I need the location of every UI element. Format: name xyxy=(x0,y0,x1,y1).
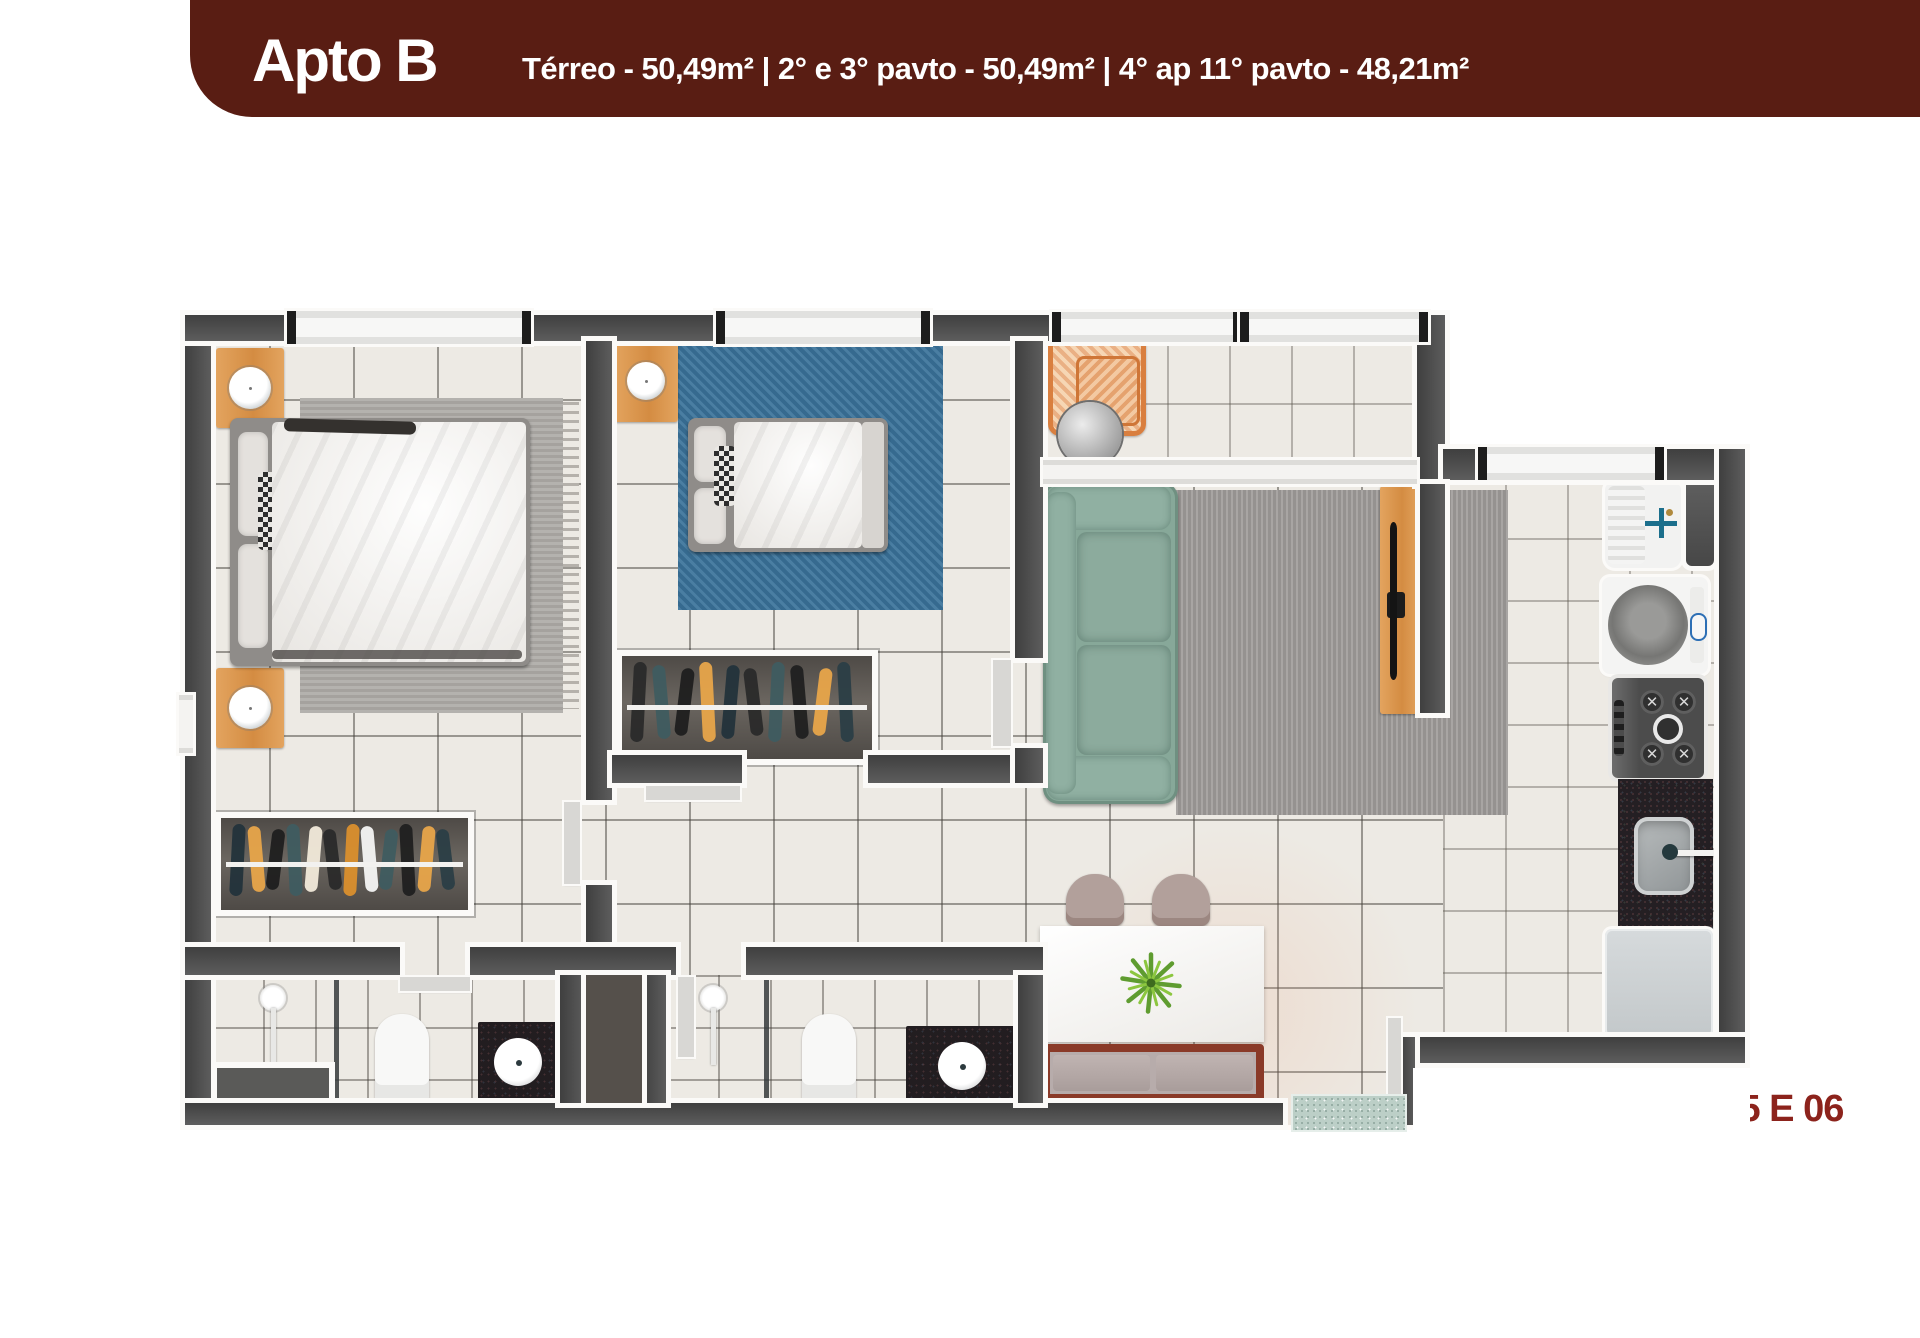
bathroom1-door-leaf xyxy=(400,977,470,991)
toilet xyxy=(802,1014,856,1103)
shower-arm xyxy=(271,1008,276,1065)
table-lamp-icon xyxy=(229,367,271,409)
gas-stove: ✕ ✕ ✕ ✕ xyxy=(1612,678,1704,778)
master-closet xyxy=(215,812,474,916)
shower-arm xyxy=(711,1008,716,1065)
wall-master-east-upper xyxy=(586,341,612,800)
hanging-clothes-icon xyxy=(343,823,360,895)
hanging-clothes-icon xyxy=(229,823,246,895)
hanging-clothes-icon xyxy=(743,668,764,737)
wall-bath-top-1 xyxy=(185,947,400,975)
refrigerator xyxy=(1605,929,1713,1037)
kitchen-drain xyxy=(1662,844,1678,860)
plant-icon xyxy=(1118,950,1184,1016)
dining-chair xyxy=(1066,874,1124,926)
washer-button xyxy=(1690,613,1707,641)
dining-chair xyxy=(1152,874,1210,926)
stove-burner-icon: ✕ xyxy=(1672,742,1696,766)
shower-glass-partition xyxy=(764,975,769,1103)
sofa-cushion xyxy=(1077,532,1171,642)
area-subtitle: Térreo - 50,49m² | 2° e 3° pavto - 50,49… xyxy=(522,51,1469,87)
outside-top-right xyxy=(1450,310,1750,444)
washing-machine xyxy=(1602,577,1708,674)
wall-bedroom2-south-left xyxy=(612,755,742,783)
shower-bench xyxy=(211,1062,335,1106)
hanging-clothes-icon xyxy=(699,662,716,743)
hanging-clothes-icon xyxy=(436,828,456,890)
bench-cushion xyxy=(1053,1055,1150,1091)
header-banner: Apto B Térreo - 50,49m² | 2° e 3° pavto … xyxy=(190,0,1920,117)
sofa xyxy=(1043,482,1178,804)
master-rug-fringe xyxy=(563,402,579,709)
stove-burner-icon: ✕ xyxy=(1640,690,1664,714)
doormat xyxy=(1291,1094,1407,1132)
wall-bath-top-3 xyxy=(746,947,1043,975)
stove-burner-icon: ✕ xyxy=(1672,690,1696,714)
wall-master-east-lower xyxy=(586,885,612,947)
bed-duvet xyxy=(734,422,862,548)
hanging-clothes-icon xyxy=(674,668,695,737)
closet-rail xyxy=(226,862,463,867)
table-lamp-icon xyxy=(229,687,271,729)
floor-plan-page: Apto B Térreo - 50,49m² | 2° e 3° pavto … xyxy=(0,0,1920,1338)
wall-bath2-east xyxy=(1018,975,1043,1103)
hanging-clothes-icon xyxy=(322,828,342,890)
vent-left-wall xyxy=(179,695,193,753)
hanging-clothes-icon xyxy=(265,828,285,890)
hanging-clothes-icon xyxy=(630,662,647,743)
tv-icon xyxy=(1390,522,1397,680)
hanging-clothes-icon xyxy=(768,662,785,743)
stove-knobs xyxy=(1614,700,1624,756)
bedroom2-closet xyxy=(616,650,878,765)
wall-bedroom2-east-stub xyxy=(1015,748,1043,783)
hanging-clothes-icon xyxy=(721,665,740,740)
balcony-window-sill xyxy=(1043,460,1417,484)
service-shaft xyxy=(586,975,642,1103)
dining-bench xyxy=(1042,1044,1264,1102)
bed-pillow xyxy=(238,544,268,648)
wall-living-east xyxy=(1420,484,1445,713)
hanging-clothes-icon xyxy=(652,665,671,740)
hanging-clothes-icon xyxy=(417,826,436,893)
living-room-rug xyxy=(1176,490,1508,815)
table-lamp-icon xyxy=(627,362,665,400)
sofa-cushion xyxy=(1077,645,1171,755)
hanging-clothes-icon xyxy=(304,826,323,893)
wall-kitchen-bottom xyxy=(1413,1037,1745,1063)
hanging-clothes-icon xyxy=(399,823,416,895)
bedroom2-door-leaf xyxy=(646,786,740,800)
bedroom2-east-door-leaf xyxy=(993,660,1011,746)
bench-cushion xyxy=(1156,1055,1253,1091)
wall-bath-divider-1 xyxy=(560,975,586,1103)
page-title: Apto B xyxy=(252,26,437,95)
stove-center-burner-icon xyxy=(1653,714,1683,744)
wall-outer-right xyxy=(1719,449,1745,1063)
tank-faucet-icon xyxy=(1659,508,1664,538)
wall-outer-bottom xyxy=(185,1103,1283,1125)
entry-door-leaf xyxy=(1388,1018,1401,1104)
wall-bath-top-2 xyxy=(470,947,676,975)
hanging-clothes-icon xyxy=(286,823,303,895)
hanging-clothes-icon xyxy=(837,662,854,743)
window-kitchen xyxy=(1478,447,1664,480)
accent-pillow xyxy=(714,446,736,506)
round-sink xyxy=(938,1042,986,1090)
washer-drum xyxy=(1608,585,1688,665)
bed-duvet xyxy=(272,422,526,662)
wall-board xyxy=(1686,480,1714,566)
window-bedroom2 xyxy=(716,311,930,344)
closet-rail xyxy=(627,705,867,710)
wall-bath-divider-2 xyxy=(642,975,666,1103)
sofa-backrest xyxy=(1046,492,1076,794)
bathroom2-door-leaf xyxy=(678,977,694,1057)
window-master-bedroom xyxy=(287,311,531,344)
mattress-foot xyxy=(862,422,884,548)
master-door-leaf xyxy=(564,802,580,884)
balcony-side-table xyxy=(1058,402,1122,466)
window-balcony-2 xyxy=(1240,312,1428,342)
hanging-clothes-icon xyxy=(379,828,399,890)
stove-burner-icon: ✕ xyxy=(1640,742,1664,766)
toilet xyxy=(375,1014,429,1103)
window-balcony-1 xyxy=(1052,312,1242,342)
round-sink xyxy=(494,1038,542,1086)
hanging-clothes-icon xyxy=(812,668,833,737)
hanging-clothes-icon xyxy=(361,826,380,893)
bed-foot-shadow xyxy=(272,650,522,659)
hanging-clothes-icon xyxy=(790,665,809,740)
wall-bedroom2-east-upper xyxy=(1015,341,1043,658)
faucet-knob xyxy=(1666,509,1673,516)
outside-bottom-right xyxy=(1413,1068,1750,1130)
hanging-clothes-icon xyxy=(247,826,266,893)
